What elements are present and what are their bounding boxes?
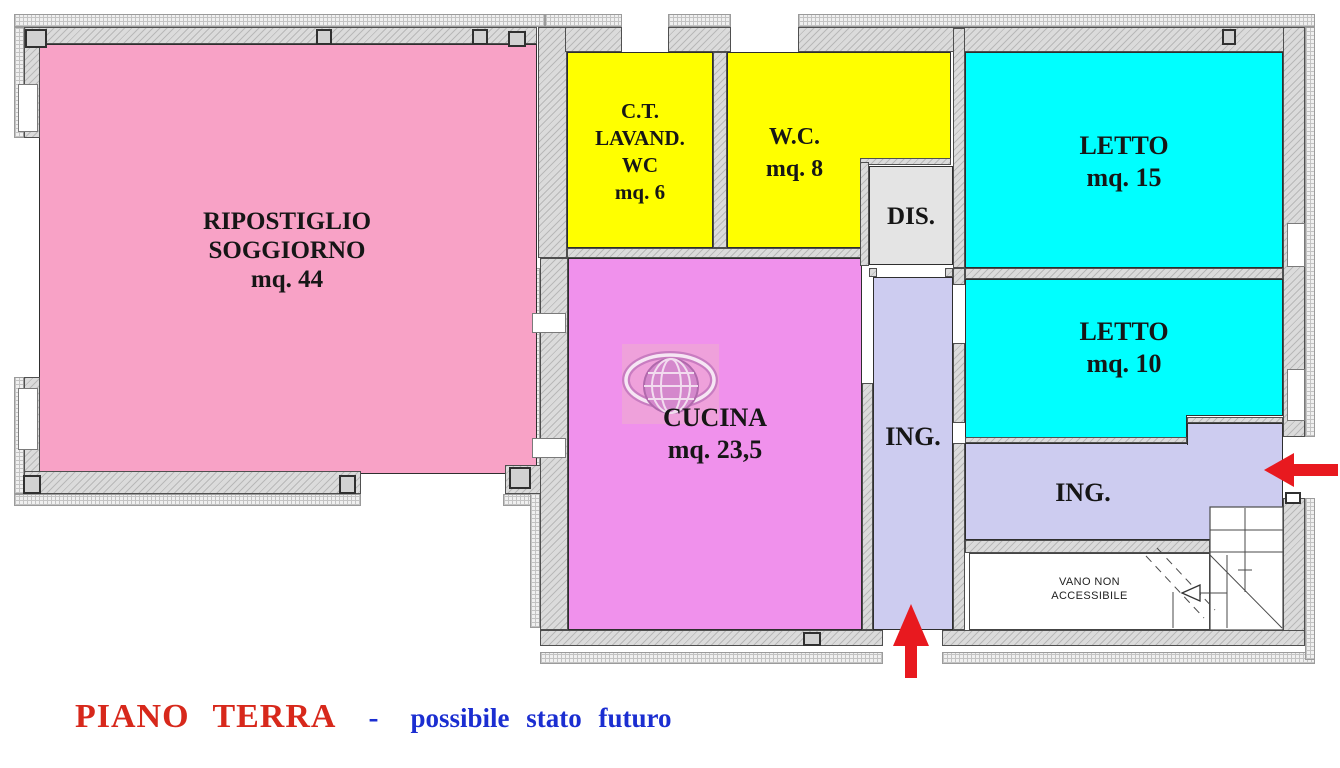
room-label-cucina: CUCINA mq. 23,5 [568, 402, 862, 466]
corridor-label-ing-horizontal: ING. [963, 477, 1203, 509]
corridor-label-ing-vertical: ING. [868, 421, 958, 453]
caption-title: PIANO TERRA [75, 698, 336, 736]
outer-band [668, 14, 731, 27]
corridor-ing-notch [1187, 423, 1283, 445]
wall-segment [965, 268, 1283, 279]
wall-segment [567, 248, 862, 258]
caption-separator: - [368, 701, 378, 735]
wall-segment [953, 28, 965, 268]
wall-pillar [1222, 29, 1236, 45]
entrance-arrow-up-icon [886, 600, 936, 680]
outer-band [1305, 498, 1315, 660]
wall-segment [668, 27, 731, 52]
wall-segment [953, 443, 965, 630]
wall-segment [945, 268, 953, 277]
wall-segment [24, 27, 537, 44]
room-label-vano-non-accessibile: VANO NON ACCESSIBILE [969, 575, 1210, 603]
stairs [1140, 500, 1290, 640]
caption: PIANO TERRA - possibile stato futuro [75, 698, 672, 736]
window-opening [1287, 369, 1305, 421]
window-opening [18, 84, 38, 132]
corridor-ing-vertical [873, 277, 953, 630]
room-label-letto-15: LETTO mq. 15 [965, 130, 1283, 194]
outer-band [942, 652, 1315, 664]
wall-pillar [23, 475, 41, 494]
room-wc-extension [860, 52, 951, 162]
room-label-wc: W.C. mq. 8 [727, 121, 862, 185]
wall-pillar [509, 467, 531, 489]
wall-segment [540, 630, 883, 646]
room-label-ripostiglio-soggiorno: RIPOSTIGLIO SOGGIORNO mq. 44 [40, 207, 534, 294]
room-label-letto-10: LETTO mq. 10 [965, 316, 1283, 380]
wall-pillar [472, 29, 488, 45]
wall-segment [953, 268, 965, 285]
room-label-dis: DIS. [869, 202, 953, 231]
wall-segment [953, 343, 965, 423]
outer-band [540, 652, 883, 664]
wall-segment [860, 158, 951, 165]
wall-pillar [25, 29, 47, 48]
window-opening [18, 388, 38, 450]
wall-segment [1187, 417, 1283, 423]
wall-segment [24, 471, 361, 494]
wall-pillar [316, 29, 332, 45]
window-opening [1287, 223, 1305, 267]
floor-plan: RIPOSTIGLIO SOGGIORNO mq. 44 C.T. LAVAND… [0, 0, 1340, 768]
outer-band [1305, 27, 1315, 437]
entrance-arrow-left-icon [1262, 450, 1338, 490]
wall-pillar [803, 632, 821, 646]
outer-band [14, 494, 361, 506]
caption-subtitle: possibile stato futuro [410, 703, 671, 734]
window-opening [532, 313, 566, 333]
outer-band [798, 14, 1315, 27]
window-opening [532, 438, 566, 458]
room-letto-10-lower [965, 415, 1187, 438]
wall-pillar [508, 31, 526, 47]
wall-pillar [339, 475, 356, 494]
wall-segment [538, 27, 567, 258]
outer-band [14, 14, 545, 27]
outer-band [545, 14, 622, 27]
wall-segment [713, 52, 727, 248]
wall-segment [869, 268, 877, 277]
room-label-ct-lavand-wc: C.T. LAVAND. WC mq. 6 [567, 98, 713, 206]
wall-segment [965, 437, 1187, 443]
wall-segment [565, 27, 622, 52]
